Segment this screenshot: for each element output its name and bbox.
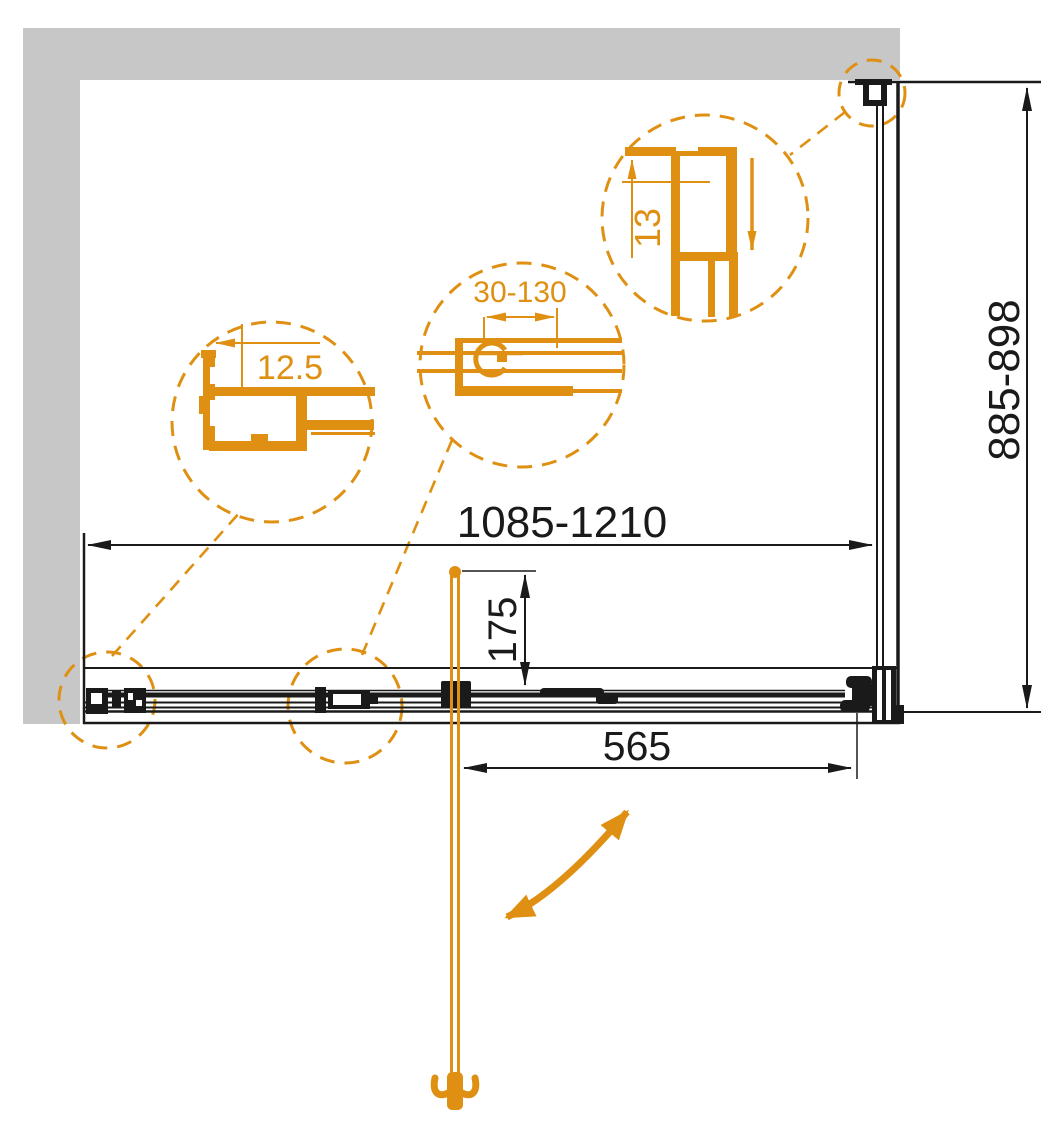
dimension-depth: 885-898 (892, 88, 1041, 712)
dimension-handle-offset-label: 175 (481, 597, 525, 664)
top-wall-profile (855, 79, 892, 106)
enclosure-structure (83, 79, 1041, 724)
door-swing-arrow (507, 812, 627, 917)
shower-enclosure-plan-diagram: 12.5 30-130 (0, 0, 1063, 1135)
dimension-width-label: 1085-1210 (457, 498, 667, 547)
left-wall-fittings (86, 688, 146, 714)
left-wall (23, 28, 80, 724)
dimension-door-width-label: 565 (603, 723, 671, 769)
dimension-width: 1085-1210 (88, 498, 872, 547)
side-panel (877, 82, 898, 724)
technical-diagram-canvas: 12.5 30-130 (0, 0, 1063, 1135)
callout-leader-middle (362, 440, 452, 655)
panel-junction-fitting (315, 687, 378, 713)
detail-label-top-profile: 13 (627, 208, 668, 248)
top-wall (23, 28, 900, 80)
detail-label-wall-profile: 12.5 (257, 349, 323, 387)
callout-leader-left (112, 512, 240, 656)
door-handle-bar (434, 566, 476, 1110)
dimension-depth-label: 885-898 (980, 299, 1029, 460)
detail-drawing-wall-profile: 12.5 (199, 324, 375, 451)
detail-drawing-adjustment: 30-130 (417, 276, 622, 396)
sliding-door-assembly (83, 666, 904, 724)
handle-mount-block (441, 681, 471, 708)
callout-leader-corner (790, 112, 845, 155)
detail-label-adjustment: 30-130 (473, 276, 566, 309)
detail-drawing-top-profile: 13 (622, 147, 752, 317)
